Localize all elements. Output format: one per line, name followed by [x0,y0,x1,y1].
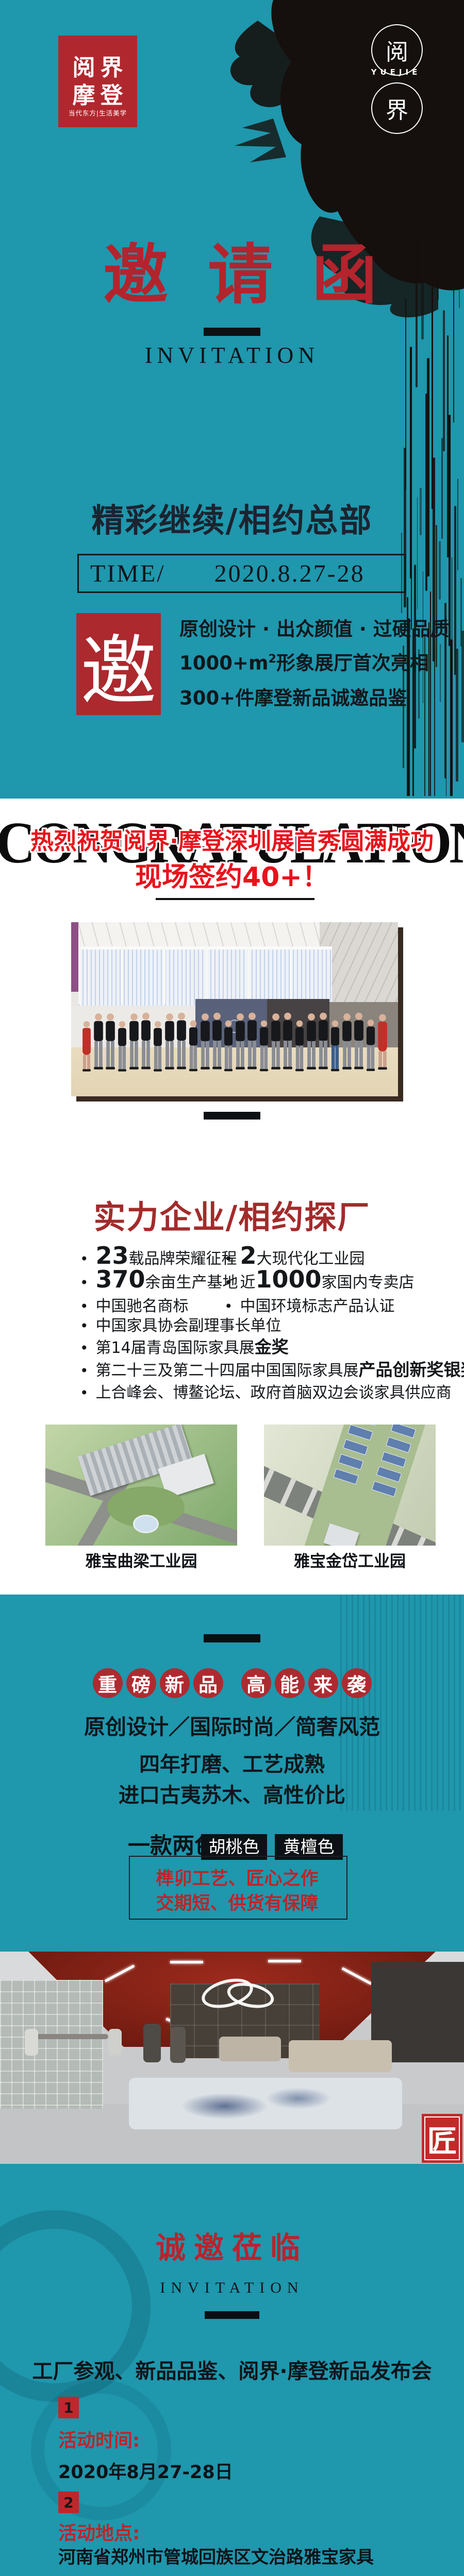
person-figure [117,1021,127,1089]
divider-bar [204,328,260,336]
person-figure [176,1013,187,1090]
congrats-line1: 热烈祝贺阅界·摩登深圳展首秀圆满成功 [0,822,464,856]
invitation-poster: 阅界 摩登 当代东方|生活美学 阅 YUEJIE 界 邀 请 函 INVITAT… [0,0,464,2576]
high-back-chair [143,2024,161,2062]
invite-subtitle: INVITATION [0,2279,464,2297]
person-figure [153,1021,162,1089]
exhibition-group-photo [71,922,398,1096]
person-figure [306,1013,317,1089]
person-figure [294,1021,305,1090]
hero-section: 阅界 摩登 当代东方|生活美学 阅 YUEJIE 界 邀 请 函 INVITAT… [0,0,464,799]
factory-caption: 雅宝曲梁工业园 [45,1548,237,1571]
point-pre: 1000+m [179,652,269,674]
bullet-dot: • [224,1274,233,1291]
title-badge: 能 [275,1668,305,1698]
person-figure [270,1013,281,1089]
strength-bullet: •第二十三及第二十四届中国国际家具展产品创新奖银奖 [80,1358,464,1382]
event-place-value: 河南省郑州市管城回族区文治路雅宝家具 [58,2543,374,2568]
new-product-line3: 进口古夷苏木、高性价比 [0,1778,464,1808]
divider-bar [205,2311,259,2319]
showroom-interior-photo [0,1952,464,2164]
dining-table [31,2034,108,2039]
new-product-line1: 原创设计／国际时尚／简奢风范 [0,1709,464,1740]
person-figure [93,1013,104,1089]
person-figure [353,1013,364,1090]
person-figure [164,1013,175,1089]
invite-title: 诚邀莅临 [0,2224,464,2267]
point-text: 300+件摩登新品诚邀品鉴 [179,687,407,709]
bullet-dot: • [80,1250,89,1267]
bullet-text: 中国环境标志产品认证 [240,1297,395,1315]
bullet-number: 1000 [256,1265,322,1293]
bullet-dot: • [80,1317,89,1334]
strength-bullet: •中国驰名商标 [80,1291,189,1315]
ceiling-light [268,1960,301,1962]
craft-line2: 交期短、供货有保障 [129,1889,345,1915]
item-number-2: 2 [58,2492,79,2513]
bullet-dot: • [224,1298,233,1315]
seal-character: 匠 [427,2117,457,2160]
bullet-bold-text: 金奖 [255,1337,289,1357]
title-badge: 重 [93,1668,123,1698]
brand-seal-char-bottom: 界 [386,92,408,125]
craft-line1: 榫卯工艺、匠心之作 [129,1864,345,1890]
strength-bullet: •23载品牌荣耀征程 [80,1244,237,1267]
strength-bullet: •近1000家国内专卖店 [224,1267,415,1291]
factory-roofs [304,1425,425,1546]
person-figure [259,1021,270,1090]
person-figure [224,1021,234,1090]
new-product-line2: 四年打磨、工艺成熟 [0,1748,464,1777]
ceiling-light [170,1961,203,1963]
person-figure [246,1013,258,1090]
person-figure [235,1013,246,1089]
poster-title-char: 请 [208,242,270,310]
divider-bar [204,1112,260,1120]
person-figure [366,1020,376,1089]
bullet-text: 第14届青岛国际家具展 [96,1339,255,1357]
brand-seal-char-top: 阅 [386,33,408,66]
person-figure [105,1013,116,1089]
invite-character: 邀 [80,609,157,720]
strength-bullet: •370余亩生产基地 [80,1267,238,1291]
title-badge: 新 [160,1668,190,1698]
hero-point: 300+件摩登新品诚邀品鉴 [179,680,407,709]
strength-bullet: •中国环境标志产品认证 [224,1291,395,1315]
strength-bullet: •2大现代化工业园 [224,1244,365,1267]
hero-point: 1000+m2形象展厅首次亮相 [179,645,429,674]
time-box: TIME/ 2020.8.27-28 [77,554,406,593]
ink-streaks [400,185,464,796]
event-time-label: 活动时间: [58,2426,140,2452]
person-figure [341,1013,353,1089]
bullet-dot: • [80,1340,89,1357]
strength-bullet: •上合峰会、博鳌论坛、政府首脑双边会谈家具供应商 [80,1380,452,1404]
divider-bar [204,1634,260,1642]
bullet-number: 370 [96,1265,145,1293]
person-figure [128,1013,140,1089]
invite-character-badge: 邀 [76,613,161,715]
brand-seal-latin: YUEJIE [355,67,437,77]
title-badge: 磅 [126,1668,156,1698]
point-text: 形象展厅首次亮相 [276,652,429,674]
crowd [81,1001,388,1089]
strength-bullet: •第14届青岛国际家具展金奖 [80,1335,289,1359]
title-badge: 品 [193,1668,223,1698]
bullet-text: 中国家具协会副理事长单位 [96,1317,281,1335]
sofa [219,2037,281,2061]
item-number-1: 1 [58,2397,79,2418]
sofa [289,2040,392,2072]
point-sup: 2 [269,653,276,666]
area-rug [129,2078,402,2129]
bullet-dot: • [80,1362,89,1379]
brand-subtitle: 当代东方|生活美学 [58,108,137,117]
brand-seal-circle-bottom: 界 [371,82,423,134]
factory-fountain [133,1515,159,1533]
high-back-chair [170,2027,186,2063]
person-figure [330,1021,340,1090]
thin-divider-line [156,898,314,900]
person-figure [211,1013,223,1090]
new-product-title-badges: 重 磅 新 品 高 能 来 袭 [0,1668,464,1698]
poster-title-char: 函 [312,242,374,310]
factory-caption: 雅宝金岱工业园 [264,1548,436,1571]
person-figure [188,1021,198,1090]
bullet-text: 上合峰会、博鳌论坛、政府首脑双边会谈家具供应商 [96,1384,452,1402]
invite-description: 工厂参观、新品品鉴、阅界·摩登新品发布会 [0,2354,464,2384]
bullet-pre: 近 [240,1274,256,1292]
bullet-text: 家国内专卖店 [322,1274,415,1292]
person-figure [318,1013,329,1090]
factory-image-qumeliang [45,1425,237,1546]
craftsman-seal: 匠 [422,2114,462,2163]
bullet-bold-text: 产品创新奖银奖 [359,1360,464,1380]
hero-invitation-word: INVITATION [0,342,464,368]
title-badge: 袭 [342,1668,372,1698]
bullet-dot: • [80,1298,89,1315]
hero-point: 原创设计 · 出众颜值 · 过硬品质 [179,611,450,640]
brand-logo-box: 阅界 摩登 当代东方|生活美学 [58,36,137,127]
congrats-line2: 现场签约40+！ [0,855,464,894]
poster-title-char: 邀 [103,242,165,310]
time-label: TIME/ [90,560,165,588]
bullet-text: 第二十三及第二十四届中国国际家具展 [96,1362,359,1380]
point-text: 原创设计 · 出众颜值 · 过硬品质 [179,618,450,640]
person-figure [282,1013,293,1090]
title-badge: 来 [308,1668,338,1698]
person-figure [200,1013,211,1089]
bullet-dot: • [224,1250,233,1267]
title-badge: 高 [241,1668,271,1698]
time-value: 2020.8.27-28 [214,560,365,588]
bullet-number: 2 [240,1242,257,1269]
photo-glass-frames [78,946,332,1004]
dining-chair [108,2029,122,2056]
person-figure [377,1014,388,1090]
photo-purple-wall [71,922,78,992]
dining-chair [25,2029,38,2056]
strength-bullet: •中国家具协会副理事长单位 [80,1313,281,1337]
strength-heading: 实力企业/相约探厂 [0,1191,464,1238]
person-figure [81,1021,91,1089]
bullet-dot: • [80,1274,89,1291]
person-figure [140,1013,152,1090]
glass-block-wall [0,1980,103,2109]
hero-tagline: 精彩继续/相约总部 [0,495,464,541]
event-place-label: 活动地点: [58,2518,140,2545]
brand-name-line2: 摩登 [58,77,137,110]
factory-image-jindai [264,1425,436,1546]
event-time-value: 2020年8月27-28日 [58,2458,233,2484]
bullet-dot: • [80,1384,89,1401]
bullet-text: 中国驰名商标 [96,1297,189,1315]
